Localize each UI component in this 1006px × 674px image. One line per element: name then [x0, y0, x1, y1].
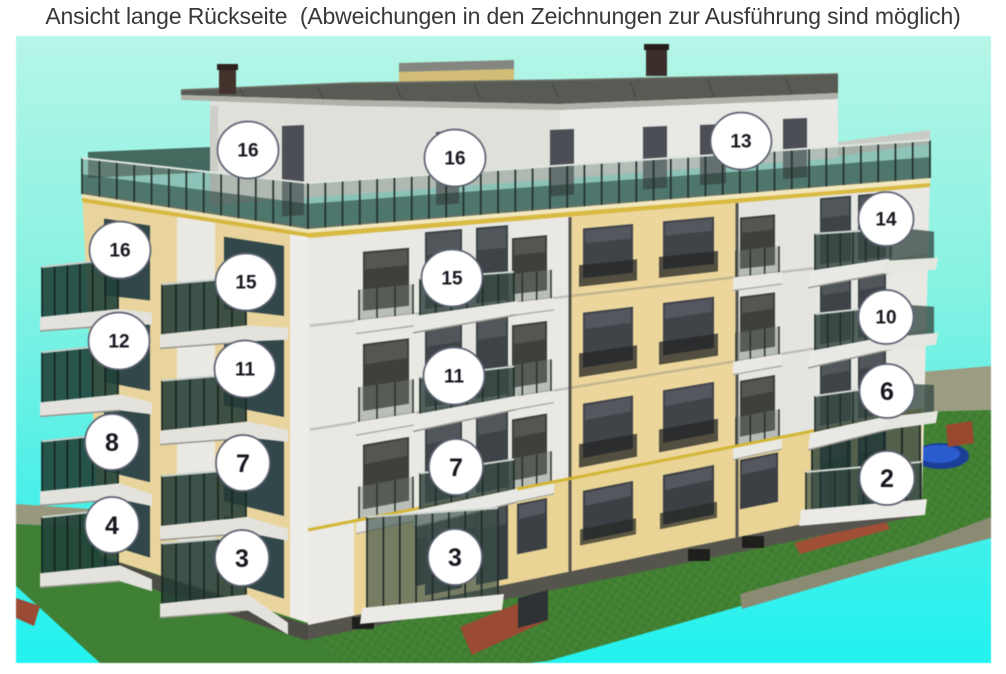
svg-text:11: 11: [444, 367, 465, 388]
svg-text:14: 14: [875, 210, 897, 231]
svg-text:7: 7: [449, 454, 463, 482]
svg-text:7: 7: [236, 450, 250, 478]
svg-text:12: 12: [108, 332, 129, 353]
svg-text:10: 10: [875, 308, 896, 329]
svg-text:15: 15: [441, 269, 463, 290]
svg-text:16: 16: [109, 241, 130, 262]
svg-text:4: 4: [105, 512, 119, 540]
svg-text:15: 15: [235, 273, 257, 294]
svg-text:3: 3: [448, 544, 462, 572]
svg-text:13: 13: [730, 132, 751, 153]
svg-text:16: 16: [237, 141, 258, 162]
svg-text:8: 8: [105, 429, 119, 457]
svg-text:11: 11: [235, 360, 256, 381]
svg-text:3: 3: [235, 545, 249, 573]
svg-text:16: 16: [444, 149, 465, 170]
svg-text:6: 6: [880, 378, 894, 406]
svg-text:2: 2: [880, 465, 894, 493]
